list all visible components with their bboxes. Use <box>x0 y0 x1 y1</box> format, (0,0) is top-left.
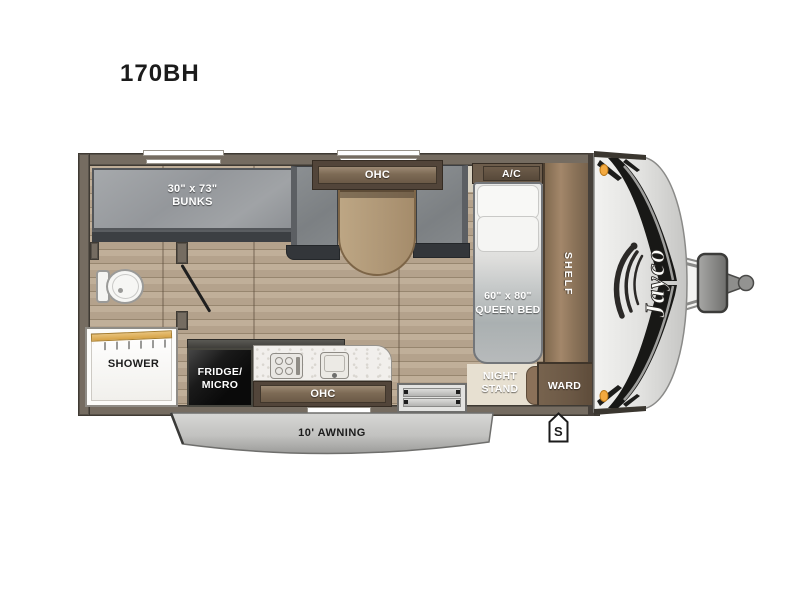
bath-wall-stub-upper <box>176 242 188 264</box>
spare-marker-letter: S <box>548 424 569 439</box>
stove-burner-1 <box>275 357 283 365</box>
clearance-light-top <box>600 165 608 176</box>
dinette-bench-left-base <box>286 245 340 260</box>
shower-label: SHOWER <box>91 358 176 370</box>
dinette-bench-right-base <box>413 243 470 258</box>
dinette-table <box>338 190 416 276</box>
hitch-ball <box>739 276 754 291</box>
window-dinette <box>337 150 420 156</box>
shelf-label: SHELF <box>558 244 574 304</box>
night-stand-line2: STAND <box>482 383 519 395</box>
bed-pillow-2 <box>477 216 539 252</box>
entry-step-tread-1 <box>403 388 461 397</box>
spare-tire-marker: S <box>548 412 569 443</box>
bunk-base <box>92 230 293 242</box>
window-bunks-inner <box>146 159 221 164</box>
entry-step-tread-2 <box>403 398 461 407</box>
fridge-line2: MICRO <box>202 379 239 391</box>
stove-burner-3 <box>285 357 293 365</box>
awning-label: 10' AWNING <box>272 427 392 439</box>
night-stand-line1: NIGHT <box>483 370 517 382</box>
night-stand-label: NIGHT STAND <box>474 370 526 395</box>
dinette-ohc-label: OHC <box>318 169 437 181</box>
floorplan-image: 170BH 30" x 73" BUNKS OHC SHOWER FRIDGE/ <box>0 0 800 600</box>
hitch-jack-box <box>698 254 727 312</box>
stove-burner-4 <box>285 367 293 375</box>
ac-label: A/C <box>483 168 540 180</box>
step-bolt-2 <box>456 390 460 394</box>
kitchen-faucet-dot <box>332 373 337 378</box>
bed-pillow-1 <box>477 185 539 219</box>
kitchen-sink-basin <box>324 355 345 372</box>
dinette-table-shadow <box>340 190 414 198</box>
kitchen-ohc-label: OHC <box>260 388 386 400</box>
fridge-label: FRIDGE/ MICRO <box>189 366 251 391</box>
stove-burner-2 <box>275 367 283 375</box>
step-bolt-4 <box>456 400 460 404</box>
brand-logo-text: Jayco <box>640 248 670 318</box>
ward-label: WARD <box>537 380 592 392</box>
stove-control-panel <box>296 357 300 375</box>
front-cap: Jayco <box>592 150 770 416</box>
bunks-text: BUNKS <box>172 196 213 208</box>
step-bolt-1 <box>404 390 408 394</box>
bunks-dim-label: 30" x 73" BUNKS <box>120 183 265 209</box>
bed-dim: 60" x 80" <box>484 290 532 302</box>
bed-label: 60" x 80" QUEEN BED <box>471 289 545 317</box>
step-bolt-3 <box>404 400 408 404</box>
toilet-bowl-inner <box>112 274 139 299</box>
bath-wall-stub-left <box>90 242 99 260</box>
bed-text: QUEEN BED <box>475 304 540 316</box>
window-bunks <box>143 150 224 156</box>
bunks-dim: 30" x 73" <box>168 183 218 195</box>
clearance-light-bottom <box>600 391 608 402</box>
fridge-line1: FRIDGE/ <box>198 366 243 378</box>
page-title: 170BH <box>120 60 200 88</box>
toilet-drain-dot <box>118 288 123 293</box>
